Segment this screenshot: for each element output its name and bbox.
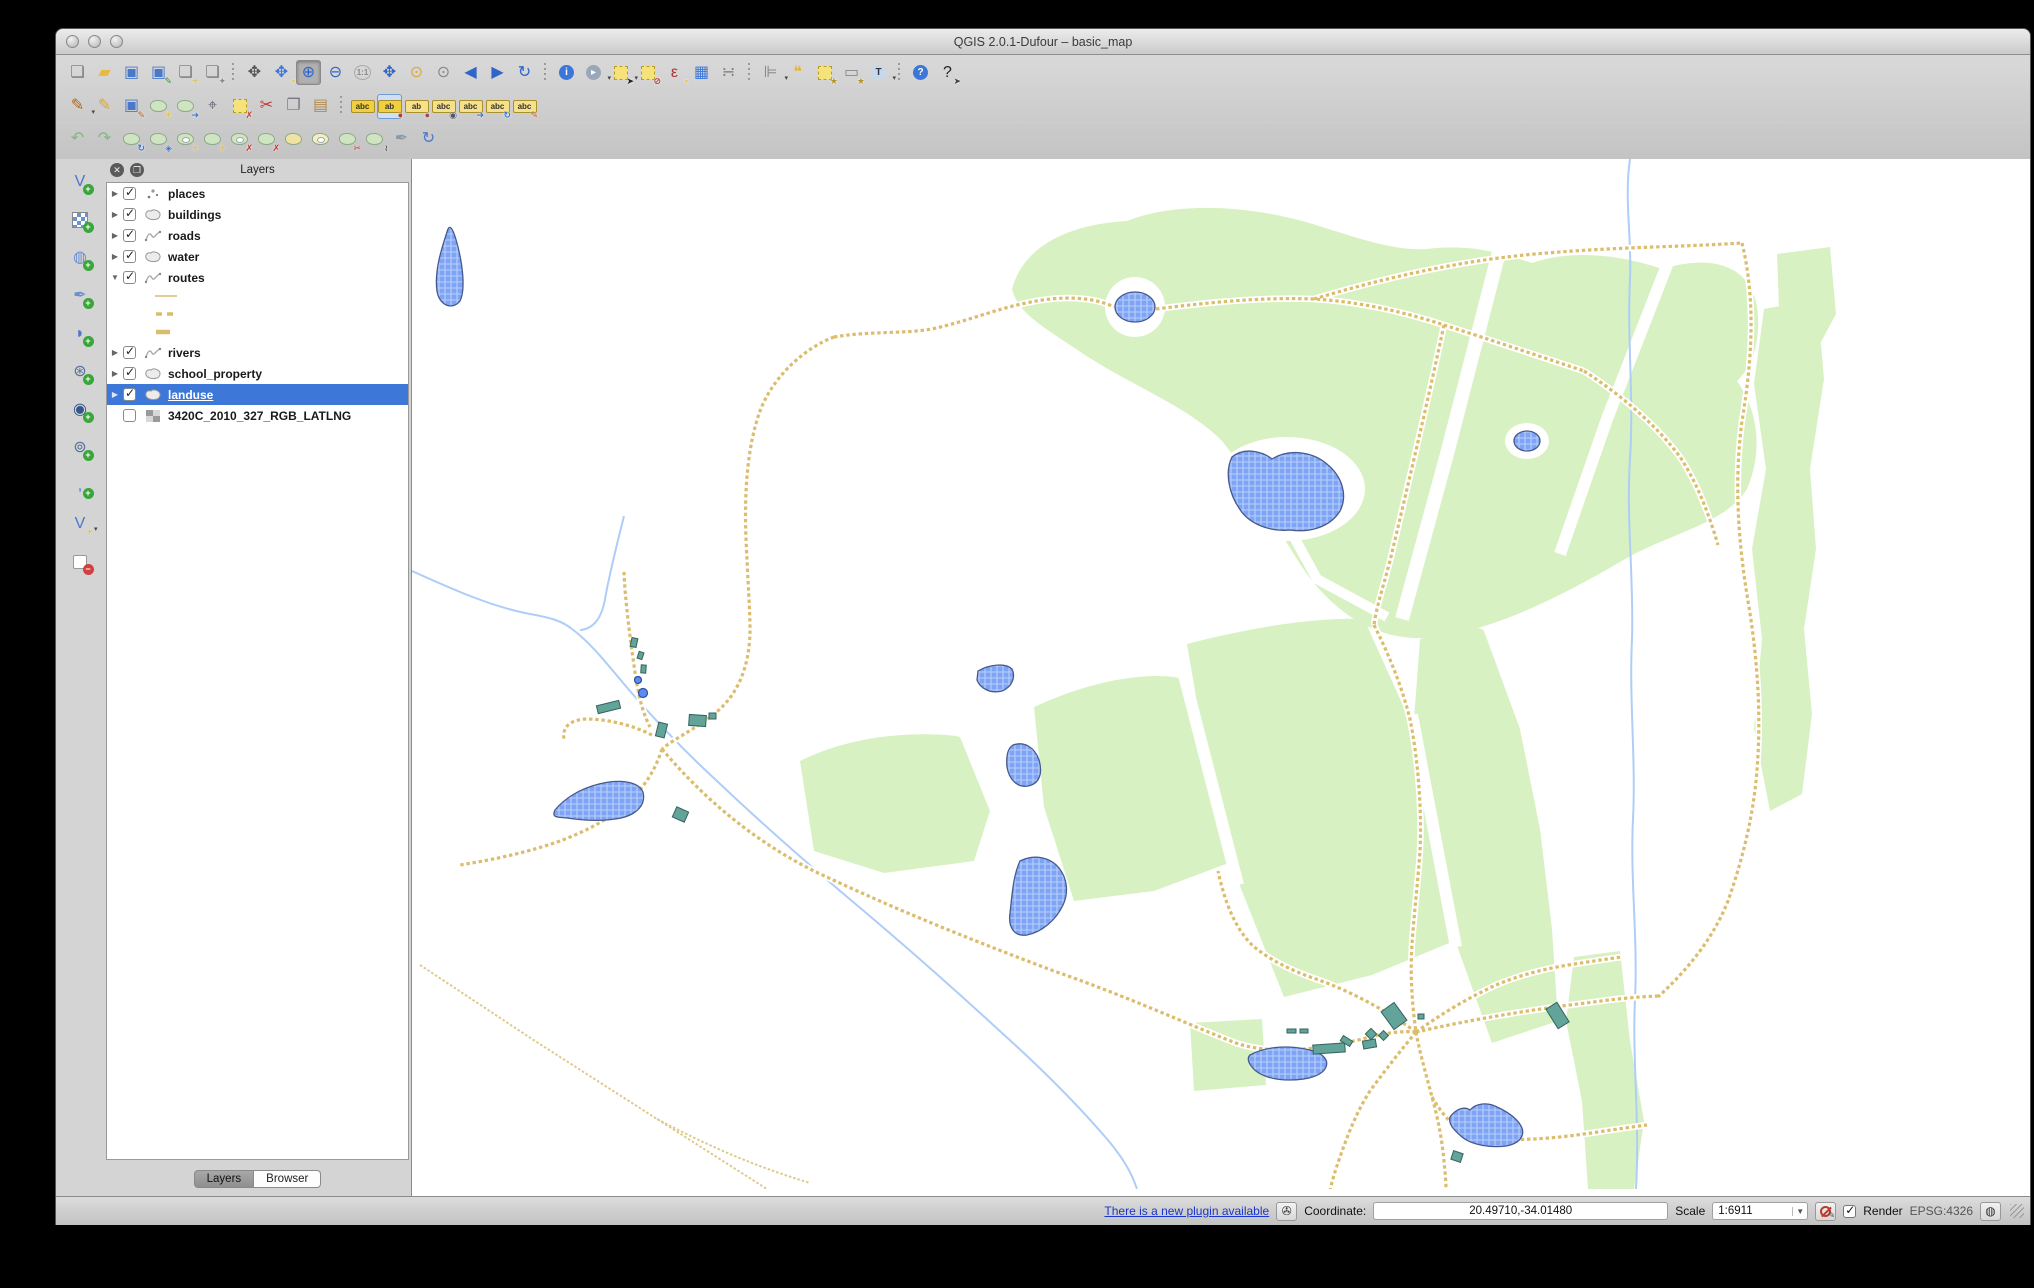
current-edits-button[interactable]: ✎▾ [65,94,90,119]
add-spatialite-layer-button[interactable]: ✒+ [68,283,93,308]
landuse-layer-shapes [800,208,1836,1189]
zoom-to-selection-button[interactable]: ⊙ [404,60,429,85]
layer-item-roads[interactable]: ▶roads [107,225,408,246]
add-vector-layer-button[interactable]: V+ [68,169,93,194]
add-delimited-text-layer-button[interactable]: ,+ [68,473,93,498]
refresh-map-button[interactable]: ↻ [512,60,537,85]
show-bookmarks-button[interactable]: ▭★ [839,60,864,85]
help-contents-button[interactable]: ? [908,60,933,85]
layers-panel: ✕ ❐ Layers ▶places▶buildings▶roads▶water… [104,159,411,1196]
layer-name: 3420C_2010_327_RGB_LATLNG [168,409,351,423]
window-controls [66,35,123,48]
symbology-child-line-dashes [107,306,408,324]
simplify-feature-button[interactable]: ◈ [146,127,171,152]
expander-icon[interactable]: ▶ [107,348,123,357]
panel-close-icon[interactable]: ✕ [110,163,124,177]
layer-visibility-checkbox[interactable] [123,409,136,422]
panel-detach-icon[interactable]: ❐ [130,163,144,177]
layers-panel-header: ✕ ❐ Layers [104,159,411,181]
symbology-child-line-solid [107,288,408,306]
layer-item-routes[interactable]: ▼routes [107,267,408,288]
window-zoom-button[interactable] [110,35,123,48]
delete-ring-button[interactable]: ✗ [227,127,252,152]
layer-name: school_property [168,367,262,381]
layer-name: water [168,250,199,264]
rotate-label-button[interactable]: abc↻ [485,94,510,119]
render-label: Render [1863,1204,1902,1218]
run-feature-action-button[interactable]: ▸▾ [581,60,606,85]
layer-visibility-checkbox[interactable] [123,271,136,284]
layer-item-3420C_2010_327_RGB_LATLNG[interactable]: 3420C_2010_327_RGB_LATLNG [107,405,408,426]
plugin-available-link[interactable]: There is a new plugin available [1104,1204,1269,1218]
polygon-symbology-icon [142,250,164,263]
undo-button[interactable]: ↶ [65,127,90,152]
save-project-as-button[interactable]: ▣✎ [146,60,171,85]
coordinate-input[interactable]: 20.49710,-34.01480 [1373,1202,1668,1220]
measure-line-button[interactable]: ⊫▾ [758,60,783,85]
tab-layers[interactable]: Layers [194,1170,255,1188]
window-title: QGIS 2.0.1-Dufour – basic_map [954,35,1133,49]
line-symbology-icon [142,346,164,359]
scale-label: Scale [1675,1204,1705,1218]
expander-icon[interactable]: ▶ [107,210,123,219]
resize-grip[interactable] [2010,1204,2024,1218]
rotate-feature-button[interactable]: ↻ [119,127,144,152]
layer-item-landuse[interactable]: ▶landuse [107,384,408,405]
move-label-button[interactable]: abc➜ [458,94,483,119]
layer-item-school_property[interactable]: ▶school_property [107,363,408,384]
text-annotation-button[interactable]: T▾ [866,60,891,85]
layer-name: buildings [168,208,221,222]
line-symbology-icon [142,229,164,242]
layer-name: landuse [168,388,213,402]
layer-visibility-checkbox[interactable] [123,388,136,401]
toolbar-separator [895,63,904,83]
toolbar-separator [337,96,346,116]
add-part-button[interactable]: ✳ [200,127,225,152]
rotate-point-symbols-button[interactable]: ↻ [416,127,441,152]
map-canvas[interactable] [411,159,2030,1196]
layer-list: ▶places▶buildings▶roads▶water▼routes▶riv… [106,182,409,1160]
zoom-next-button[interactable]: ▶ [485,60,510,85]
toolbar-separator [229,63,238,83]
delete-selected-button[interactable]: ✗ [227,94,252,119]
move-feature-button[interactable]: ➜ [173,94,198,119]
layer-item-rivers[interactable]: ▶rivers [107,342,408,363]
polygon-symbology-icon [142,367,164,380]
open-attribute-table-button[interactable]: ▦ [689,60,714,85]
new-bookmark-button[interactable]: ★ [812,60,837,85]
add-raster-layer-button[interactable]: + [68,207,93,232]
layer-item-water[interactable]: ▶water [107,246,408,267]
layer-name: roads [168,229,201,243]
toggle-editing-button[interactable]: ✎ [92,94,117,119]
zoom-to-layer-button[interactable]: ⊙ [431,60,456,85]
layer-name: routes [168,271,205,285]
chevron-down-icon[interactable]: ▼ [1792,1207,1807,1216]
title-bar[interactable]: QGIS 2.0.1-Dufour – basic_map [56,29,2030,55]
split-features-button[interactable]: ✂ [335,127,360,152]
fill-ring-button[interactable] [281,127,306,152]
paste-features-button[interactable]: ▤ [308,94,333,119]
plugin-icon[interactable]: ✇ [1276,1202,1297,1221]
whats-this-button[interactable]: ?➤ [935,60,960,85]
show-hide-labels-button[interactable]: abc◉ [431,94,456,119]
add-wcs-layer-button[interactable]: ◉+ [68,397,93,422]
line-dashes-swatch [153,306,179,324]
toolbar-separator [745,63,754,83]
expander-icon[interactable]: ▼ [107,273,123,282]
expander-icon[interactable]: ▶ [107,390,123,399]
layer-item-places[interactable]: ▶places [107,183,408,204]
toolbar-row-file-nav: ❏▰▣▣✎❏✳❏✦✥✥▪⊕⊖1:1✥⊙⊙◀▶↻i▸▾➤▾⊘ε▪▦∺⊫▾❝★▭★T… [60,56,2026,89]
toolbar-separator [541,63,550,83]
pan-map-button[interactable]: ✥ [242,60,267,85]
line-thick-swatch [153,324,179,342]
line-symbology-icon [142,271,164,284]
layer-item-buildings[interactable]: ▶buildings [107,204,408,225]
toolbar-area: ❏▰▣▣✎❏✳❏✦✥✥▪⊕⊖1:1✥⊙⊙◀▶↻i▸▾➤▾⊘ε▪▦∺⊫▾❝★▭★T… [56,55,2030,162]
add-feature-button[interactable]: ✳ [146,94,171,119]
map-tips-button[interactable]: ❝ [785,60,810,85]
symbology-child-line-thick [107,324,408,342]
line-solid-swatch [153,288,179,306]
new-project-button[interactable]: ❏ [65,60,90,85]
map-svg [412,159,2030,1189]
layer-visibility-checkbox[interactable] [123,208,136,221]
dock-tabs: Layers Browser [104,1170,411,1188]
crs-status-label: EPSG:4326 [1910,1204,1973,1218]
point-symbology-icon [142,187,164,201]
expander-icon[interactable]: ▶ [107,369,123,378]
tab-browser[interactable]: Browser [254,1170,321,1188]
status-bar: There is a new plugin available ✇ Coordi… [56,1196,2030,1225]
zoom-in-button[interactable]: ⊕ [296,60,321,85]
layer-name: places [168,187,205,201]
identify-features-button[interactable]: i [554,60,579,85]
layer-labeling-options-button[interactable]: abc [350,94,375,119]
new-print-composer-button[interactable]: ❏✳ [173,60,198,85]
redo-button[interactable]: ↷ [92,127,117,152]
stop-render-icon[interactable]: ✎ [1815,1202,1836,1221]
scale-value: 1:6911 [1713,1205,1792,1217]
roads-layer-shapes [420,965,810,1189]
copy-features-button[interactable]: ❐ [281,94,306,119]
crs-globe-icon[interactable]: ◍ [1980,1202,2001,1221]
polygon-symbology-icon [142,208,164,221]
layer-visibility-checkbox[interactable] [123,367,136,380]
select-features-button[interactable]: ➤▾ [608,60,633,85]
coordinate-label: Coordinate: [1304,1204,1366,1218]
expander-icon[interactable]: ▶ [107,252,123,261]
offset-curve-button[interactable]: ✒ [389,127,414,152]
save-layer-edits-button[interactable]: ▣✎ [119,94,144,119]
expander-icon[interactable]: ▶ [107,231,123,240]
zoom-full-extent-button[interactable]: ✥ [377,60,402,85]
layer-visibility-checkbox[interactable] [123,187,136,200]
pin-unpin-labels-button[interactable]: ab● [377,94,402,119]
remove-layer-button[interactable]: − [68,549,93,574]
add-ring-button[interactable]: ✳ [173,127,198,152]
layers-panel-title: Layers [240,164,275,176]
pan-to-selection-button[interactable]: ✥▪ [269,60,294,85]
reshape-features-button[interactable] [308,127,333,152]
layer-visibility-checkbox[interactable] [123,250,136,263]
layer-visibility-checkbox[interactable] [123,346,136,359]
layer-name: rivers [168,346,201,360]
polygon-symbology-icon [142,388,164,401]
add-postgis-layer-button[interactable]: ◍+ [68,245,93,270]
qgis-window: QGIS 2.0.1-Dufour – basic_map ❏▰▣▣✎❏✳❏✦✥… [55,28,2031,1225]
select-by-expression-button[interactable]: ε▪ [662,60,687,85]
cut-features-button[interactable]: ✂ [254,94,279,119]
highlight-pinned-labels-button[interactable]: ab● [404,94,429,119]
deselect-features-button[interactable]: ⊘ [635,60,660,85]
zoom-last-button[interactable]: ◀ [458,60,483,85]
zoom-out-button[interactable]: ⊖ [323,60,348,85]
toolbar-row-digitizing-labels: ✎▾✎▣✎✳➜⌖✗✂❐▤abcab●ab●abc◉abc➜abc↻abc✎ [60,89,2026,122]
new-shapefile-layer-button[interactable]: V✳▾ [68,511,93,536]
field-calculator-button[interactable]: ∺ [716,60,741,85]
toolbar-row-advanced-digitizing: ↶↷↻◈✳✳✗✗✂≀✒↻ [60,122,2026,155]
window-close-button[interactable] [66,35,79,48]
manage-layers-toolbar: V++◍+✒+◗+⊛+◉+⊚+,+V✳▾− [56,159,104,1196]
render-checkbox[interactable] [1843,1205,1856,1218]
raster-symbology-icon [142,409,164,423]
composer-manager-button[interactable]: ❏✦ [200,60,225,85]
change-label-properties-button[interactable]: abc✎ [512,94,537,119]
delete-part-button[interactable]: ✗ [254,127,279,152]
zoom-actual-size-button[interactable]: 1:1 [350,60,375,85]
add-mssql-layer-button[interactable]: ◗+ [68,321,93,346]
main-area: V++◍+✒+◗+⊛+◉+⊚+,+V✳▾− ✕ ❐ Layers ▶places… [56,159,2030,1196]
add-wfs-layer-button[interactable]: ⊚+ [68,435,93,460]
window-minimize-button[interactable] [88,35,101,48]
split-parts-button[interactable]: ≀ [362,127,387,152]
save-project-button[interactable]: ▣ [119,60,144,85]
layer-visibility-checkbox[interactable] [123,229,136,242]
open-project-button[interactable]: ▰ [92,60,117,85]
add-wms-layer-button[interactable]: ⊛+ [68,359,93,384]
expander-icon[interactable]: ▶ [107,189,123,198]
node-tool-button[interactable]: ⌖ [200,94,225,119]
scale-combo[interactable]: 1:6911 ▼ [1712,1202,1808,1220]
